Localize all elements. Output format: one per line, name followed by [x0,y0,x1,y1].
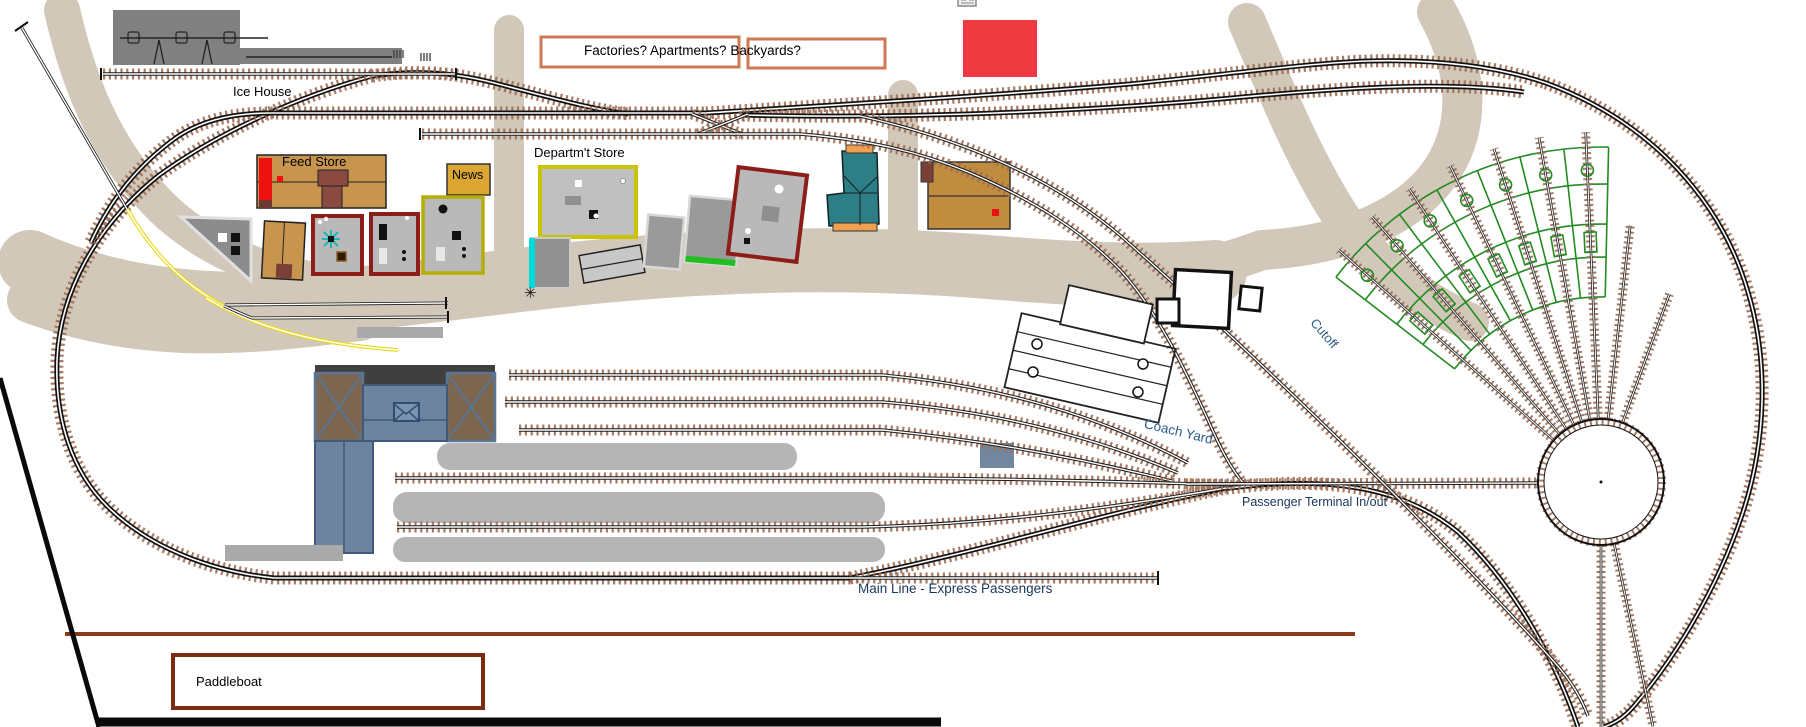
feed-store-red-dot [277,176,283,182]
factories-label: Factories? Apartments? Backyards? [584,44,801,59]
building-c-dot2 [745,228,751,234]
building-b-black-bar [379,224,387,240]
feed-store-core-2 [322,186,342,208]
shed-jack-1 [1032,339,1042,349]
department-store-label: Departm't Store [534,146,625,160]
triangle-detail-white [218,233,227,242]
roundhouse-divider-8 [1605,147,1608,297]
building-a-crate [337,252,346,261]
shore-diagonal [0,378,99,727]
building-c-black-sq [744,238,750,244]
tan-double-maroon [276,264,293,279]
feed-store-label: Feed Store [282,155,346,169]
feed-store-red-strip [259,158,272,200]
building-a-dot1 [318,220,322,224]
department-store-building [540,167,636,237]
ice-house-dock [240,48,402,64]
building-b-dot2 [402,257,406,261]
main-line-label: Main Line - Express Passengers [858,582,1052,597]
olive-building-sq [452,231,461,240]
teal-orange-tab-bottom [833,223,877,231]
shed-jack-4 [1133,387,1143,397]
tan-big-maroon-tab [921,162,933,182]
olive-building-dot2 [462,247,466,251]
platform-a [437,443,797,470]
building-c-white-dot [775,185,784,194]
teal-l-building [827,151,879,226]
dept-store-white-sq [575,180,582,187]
cyan-edge-building [531,238,570,288]
building-c-gray-sq [761,205,780,222]
platform-d [225,545,343,561]
red-building [963,20,1037,77]
building-b-white-bar [379,248,387,264]
building-b-dot3 [405,216,409,220]
red-border-building-b [371,214,418,274]
dept-store-dot2 [594,214,599,219]
turntable-center [1600,481,1603,484]
terminal-main [850,483,1578,727]
street-platform [357,327,443,338]
track-plan-diagram: ✳ Ice House Feed Store News Departm't St… [0,0,1806,727]
dept-store-gray-sq [565,196,581,205]
feed-store-maroon [259,200,272,208]
platform-c [393,537,885,562]
ice-house-label: Ice House [233,85,292,99]
platform-b [393,492,885,523]
track-plan-canvas: ✳ [0,0,1806,727]
slanted-gray-building-1 [644,215,684,270]
olive-building-dot [439,205,448,214]
news-label: News [452,169,483,183]
passenger-terminal-label: Passenger Terminal In/out [1242,496,1387,510]
dept-store-dot1 [621,179,626,184]
building-a-dot2 [324,217,328,221]
cyan-edge-strip [529,238,535,288]
building-b-dot1 [402,250,406,254]
shed-jack-3 [1138,359,1148,369]
asterisk-mark: ✳ [524,285,537,302]
triangle-detail-black1 [231,233,240,242]
olive-building-dot3 [462,254,466,258]
tan-big-red-dot [992,209,999,216]
feed-store-core-1 [318,170,348,186]
service-building-small-2 [1239,286,1262,311]
service-building-large [1173,270,1232,329]
paddleboat-label: Paddleboat [196,675,262,689]
service-building-small-1 [1157,299,1179,323]
triangle-detail-black2 [231,246,240,255]
shed-jack-2 [1028,367,1038,377]
starburst-core [328,236,334,242]
olive-building-white [436,247,445,261]
